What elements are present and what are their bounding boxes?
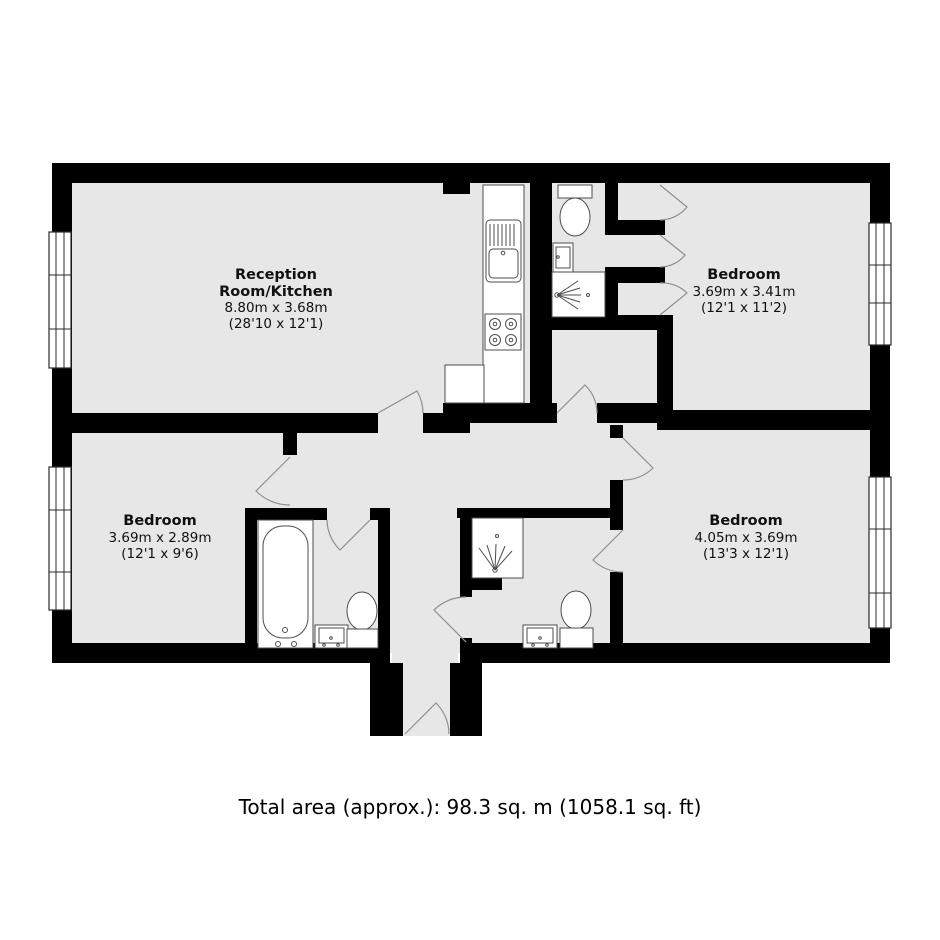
sink-icon [553,243,573,272]
room-name: Bedroom [123,513,196,529]
toilet-icon [558,185,592,236]
room-dims-imperial: (12'1 x 9'6) [121,546,198,562]
bathtub-icon [258,520,313,648]
floorplan-page: Reception Room/Kitchen 8.80m x 3.68m (28… [0,0,940,940]
room-dims-metric: 8.80m x 3.68m [225,300,328,316]
shower-icon [472,518,523,578]
toilet-icon [347,592,378,648]
room-dims-imperial: (13'3 x 12'1) [703,546,789,562]
room-dims-metric: 4.05m x 3.69m [695,530,798,546]
room-name: Bedroom [707,267,780,283]
room-name: Reception [235,267,317,283]
room-dims-metric: 3.69m x 3.41m [693,284,796,300]
sink-icon [523,625,557,648]
room-dims-imperial: (28'10 x 12'1) [229,316,324,332]
window-bedroom-top-right [869,223,891,345]
window-reception [49,232,71,368]
room-dims-imperial: (12'1 x 11'2) [701,300,787,316]
room-dims-metric: 3.69m x 2.89m [109,530,212,546]
window-bedroom-bottom-left [49,467,71,610]
sink-icon [315,625,348,648]
room-label-bedroom-bottom-right: Bedroom 4.05m x 3.69m (13'3 x 12'1) [695,513,798,562]
shower-icon [552,272,605,317]
total-area-label: Total area (approx.): 98.3 sq. m (1058.1… [0,795,940,819]
room-label-reception: Reception Room/Kitchen 8.80m x 3.68m (28… [219,267,333,332]
room-label-bedroom-bottom-left: Bedroom 3.69m x 2.89m (12'1 x 9'6) [109,513,212,562]
room-name-line2: Room/Kitchen [219,284,333,300]
floorplan-canvas: Reception Room/Kitchen 8.80m x 3.68m (28… [0,0,940,770]
kitchen-sink-icon [486,220,521,282]
window-bedroom-bottom-right [869,477,891,628]
hob-icon [485,314,521,350]
room-name: Bedroom [709,513,782,529]
toilet-icon [560,591,593,648]
room-label-bedroom-top-right: Bedroom 3.69m x 3.41m (12'1 x 11'2) [693,267,796,316]
